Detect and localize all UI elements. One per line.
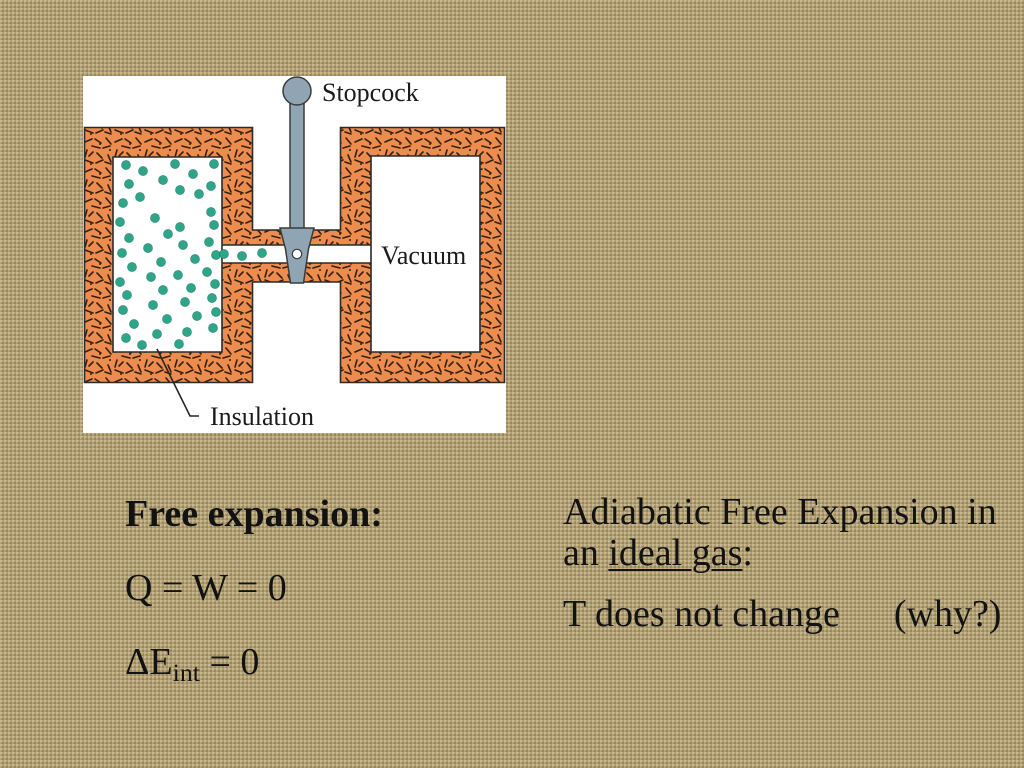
gas-particle — [115, 217, 124, 226]
gas-particle — [127, 262, 136, 271]
adiabatic-statement: Adiabatic Free Expansion inan ideal gas: — [563, 492, 1013, 574]
gas-particle — [202, 267, 211, 276]
gas-particle — [158, 285, 167, 294]
free-expansion-figure: Stopcock Vacuum Insulation — [83, 76, 506, 433]
adiabatic-line2-colon: : — [742, 532, 753, 574]
stopcock-ball — [283, 77, 311, 105]
gas-particle — [121, 160, 130, 169]
t-does-not-change-text: T does not change — [563, 593, 840, 635]
equation-delta-e: ΔEint = 0 — [125, 640, 505, 684]
gas-particle — [206, 207, 215, 216]
gas-particle — [162, 314, 171, 323]
delta-e-subscript: int — [173, 658, 200, 687]
gas-particle — [129, 319, 138, 328]
gas-particle — [208, 323, 217, 332]
gas-particle — [163, 229, 172, 238]
gas-particle — [182, 327, 191, 336]
gas-particle — [121, 333, 130, 342]
gas-particle — [211, 307, 220, 316]
gas-particle — [152, 329, 161, 338]
gas-particle — [175, 222, 184, 231]
vacuum-label: Vacuum — [381, 241, 466, 270]
gas-particle — [124, 179, 133, 188]
ideal-gas-underlined: ideal gas — [608, 532, 742, 574]
left-text-column: Free expansion: Q = W = 0 ΔEint = 0 — [125, 492, 505, 714]
gas-particle — [150, 213, 159, 222]
delta-e-symbol: ΔE — [125, 641, 173, 683]
gas-particle — [206, 181, 215, 190]
gas-particle — [219, 249, 228, 258]
gas-particle — [117, 248, 126, 257]
gas-particle — [180, 297, 189, 306]
gas-particle — [178, 240, 187, 249]
gas-particle — [175, 185, 184, 194]
gas-particle — [148, 300, 157, 309]
gas-particle — [190, 254, 199, 263]
stopcock-valve-hole — [292, 249, 301, 258]
gas-particle — [204, 237, 213, 246]
gas-particle — [186, 283, 195, 292]
gas-particle — [137, 340, 146, 349]
slide: Stopcock Vacuum Insulation Free expansio… — [0, 0, 1024, 768]
equation-q-w: Q = W = 0 — [125, 566, 505, 610]
temperature-statement: T does not change(why?) — [563, 594, 1013, 635]
insulation-label: Insulation — [210, 402, 314, 431]
adiabatic-line2-pre: an — [563, 532, 608, 574]
right-text-column: Adiabatic Free Expansion inan ideal gas:… — [563, 492, 1013, 635]
why-note: (why?) — [894, 594, 1002, 635]
gas-particle — [138, 166, 147, 175]
gas-particle — [188, 169, 197, 178]
adiabatic-line1: Adiabatic Free Expansion in — [563, 491, 997, 533]
apparatus-diagram: Stopcock Vacuum Insulation — [83, 76, 506, 433]
gas-particle — [209, 220, 218, 229]
gas-particle — [118, 198, 127, 207]
gas-particle — [156, 257, 165, 266]
gas-particle — [158, 175, 167, 184]
gas-particle — [122, 290, 131, 299]
gas-particle — [143, 243, 152, 252]
gas-particle — [115, 277, 124, 286]
free-expansion-heading: Free expansion: — [125, 492, 505, 536]
gas-particle — [209, 159, 218, 168]
gas-particle — [124, 233, 133, 242]
stopcock-rod — [290, 89, 304, 231]
stopcock-label: Stopcock — [322, 78, 419, 107]
gas-particle — [146, 272, 155, 281]
gas-particle — [210, 279, 219, 288]
gas-particle — [174, 339, 183, 348]
gas-particle — [237, 251, 246, 260]
gas-particle — [118, 305, 127, 314]
gas-particle — [173, 270, 182, 279]
gas-particle — [170, 159, 179, 168]
gas-particle — [207, 293, 216, 302]
gas-particle — [192, 311, 201, 320]
gas-particle — [135, 192, 144, 201]
delta-e-equals-zero: = 0 — [200, 641, 259, 683]
gas-particle — [257, 248, 266, 257]
gas-particle — [194, 189, 203, 198]
